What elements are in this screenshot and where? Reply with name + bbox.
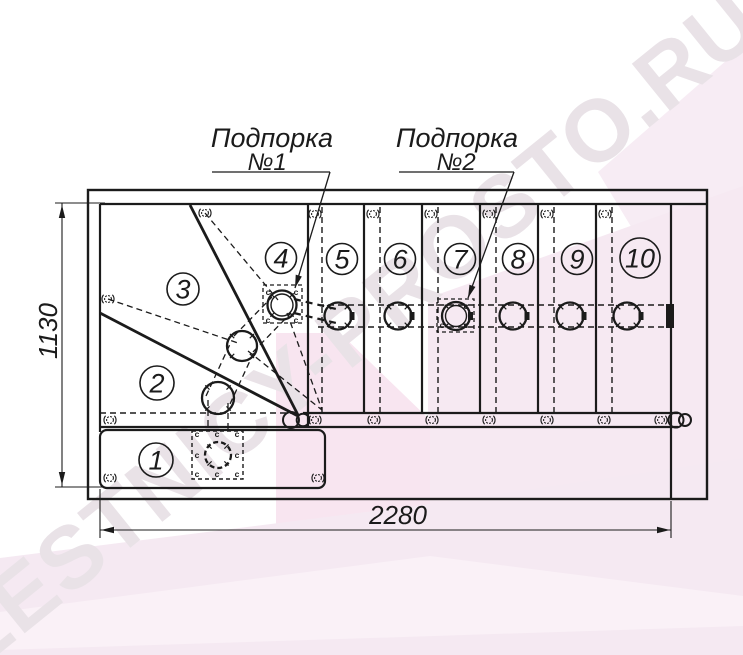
support2-number: №2 xyxy=(436,149,475,176)
staircase-plan-page: LESTNICY-PROSTO.RU 12345678910cccccccccc… xyxy=(0,0,743,655)
support1-number: №1 xyxy=(247,149,286,176)
connector-mark: c xyxy=(195,469,200,479)
wall-block xyxy=(666,304,674,328)
post-tab xyxy=(525,312,530,320)
baluster-icon xyxy=(114,416,116,425)
baluster-icon xyxy=(112,295,114,304)
baluster-icon xyxy=(367,210,369,219)
baluster-icon xyxy=(609,210,611,219)
baluster-icon xyxy=(377,210,379,219)
step-number: 1 xyxy=(148,446,163,476)
baluster-icon xyxy=(209,209,211,218)
step-number: 7 xyxy=(452,245,468,275)
plan-dashed-line xyxy=(108,299,238,343)
baluster-icon xyxy=(599,210,601,219)
staircase-plan-drawing: LESTNICY-PROSTO.RU 12345678910cccccccccc… xyxy=(0,0,743,655)
step-number: 3 xyxy=(175,275,190,305)
step-number: 9 xyxy=(569,245,584,275)
connector-mark: c xyxy=(235,469,240,479)
post-tab xyxy=(468,312,473,320)
connector-mark: c xyxy=(235,429,240,439)
connector-mark: c xyxy=(195,450,200,460)
connector-mark: c xyxy=(464,320,469,330)
post-tab xyxy=(350,312,355,320)
step-number: 4 xyxy=(273,244,288,274)
baluster-icon xyxy=(309,210,311,219)
connector-mark: c xyxy=(294,287,299,297)
step-number: 10 xyxy=(625,244,655,274)
baluster-icon xyxy=(199,209,201,218)
connector-mark: c xyxy=(215,469,220,479)
connector-mark: c xyxy=(266,315,271,325)
post-tab xyxy=(582,312,587,320)
dimension-height-value: 1130 xyxy=(33,303,63,359)
connector-mark: c xyxy=(464,301,469,311)
step-number: 8 xyxy=(510,245,525,275)
step-number: 2 xyxy=(148,369,164,399)
baluster-icon xyxy=(602,211,609,218)
dimension-width-value: 2280 xyxy=(368,500,427,530)
connector-mark: c xyxy=(195,429,200,439)
baluster-icon xyxy=(319,210,321,219)
step-number: 6 xyxy=(392,245,408,275)
baluster-icon xyxy=(104,416,106,425)
post-tab xyxy=(410,312,415,320)
connector-mark: c xyxy=(440,320,445,330)
arrowhead-icon xyxy=(59,472,65,485)
post-tab xyxy=(639,312,644,320)
baluster-icon xyxy=(102,295,104,304)
connector-mark: c xyxy=(294,315,299,325)
connector-mark: c xyxy=(235,450,240,460)
connector-mark: c xyxy=(215,429,220,439)
connector-mark: c xyxy=(266,287,271,297)
arrowhead-icon xyxy=(59,205,65,218)
step-number: 5 xyxy=(334,245,350,275)
baluster-icon xyxy=(107,417,114,424)
baluster-icon xyxy=(370,211,377,218)
